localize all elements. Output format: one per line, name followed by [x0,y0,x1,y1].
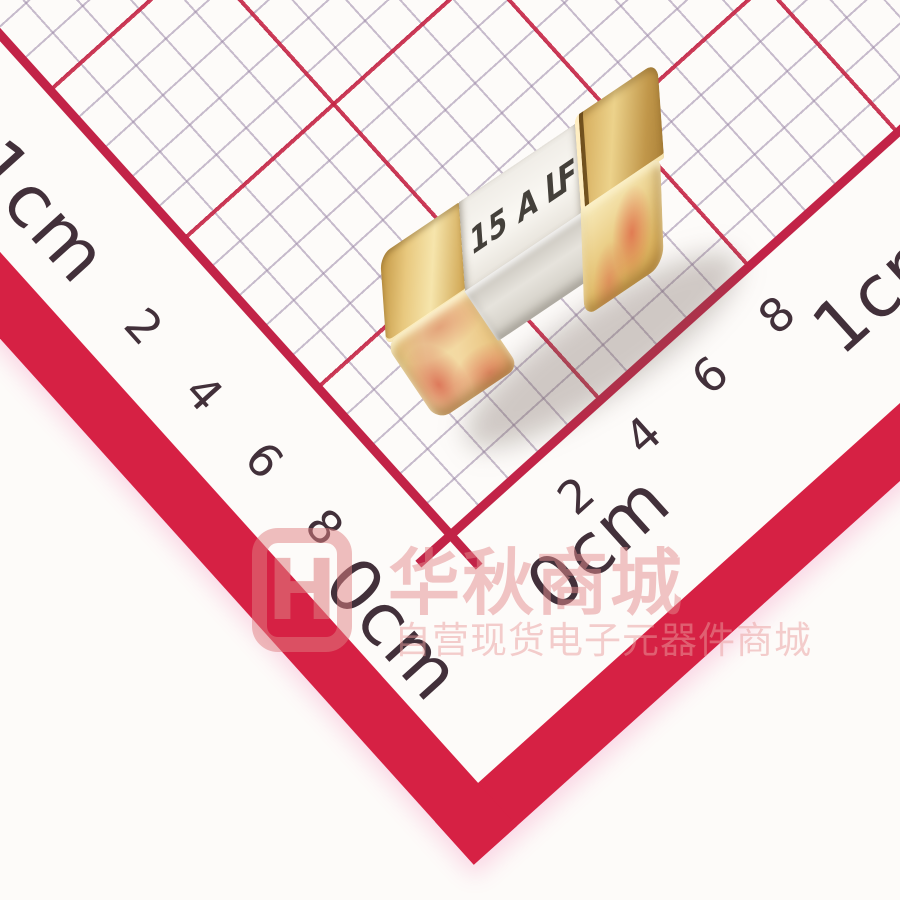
measuring-paper: 1cm 2 4 6 8 0cm 0cm 2 4 6 8 1cm [0,0,900,900]
watermark-logo-letter: H [267,548,337,632]
product-photo: 1cm 2 4 6 8 0cm 0cm 2 4 6 8 1cm H 华秋商城 自… [0,0,900,900]
fuse-marking-logo: LF [544,151,573,214]
watermark-tagline-text: 自营现货电子元器件商城 [394,610,812,664]
watermark-logo-icon: H [252,528,352,652]
